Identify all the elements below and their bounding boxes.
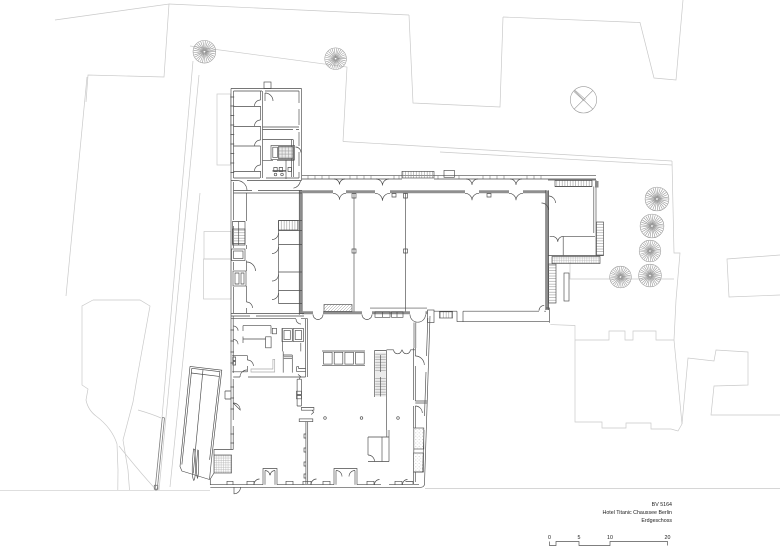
svg-text:Erdgeschoss: Erdgeschoss — [641, 518, 672, 524]
svg-text:BV 5164: BV 5164 — [652, 502, 672, 508]
svg-text:5: 5 — [578, 535, 581, 541]
svg-text:0: 0 — [548, 535, 551, 541]
svg-text:20: 20 — [665, 535, 671, 541]
svg-text:Hotel Titanic Chaussee Berlin: Hotel Titanic Chaussee Berlin — [603, 510, 673, 516]
svg-text:10: 10 — [607, 535, 613, 541]
